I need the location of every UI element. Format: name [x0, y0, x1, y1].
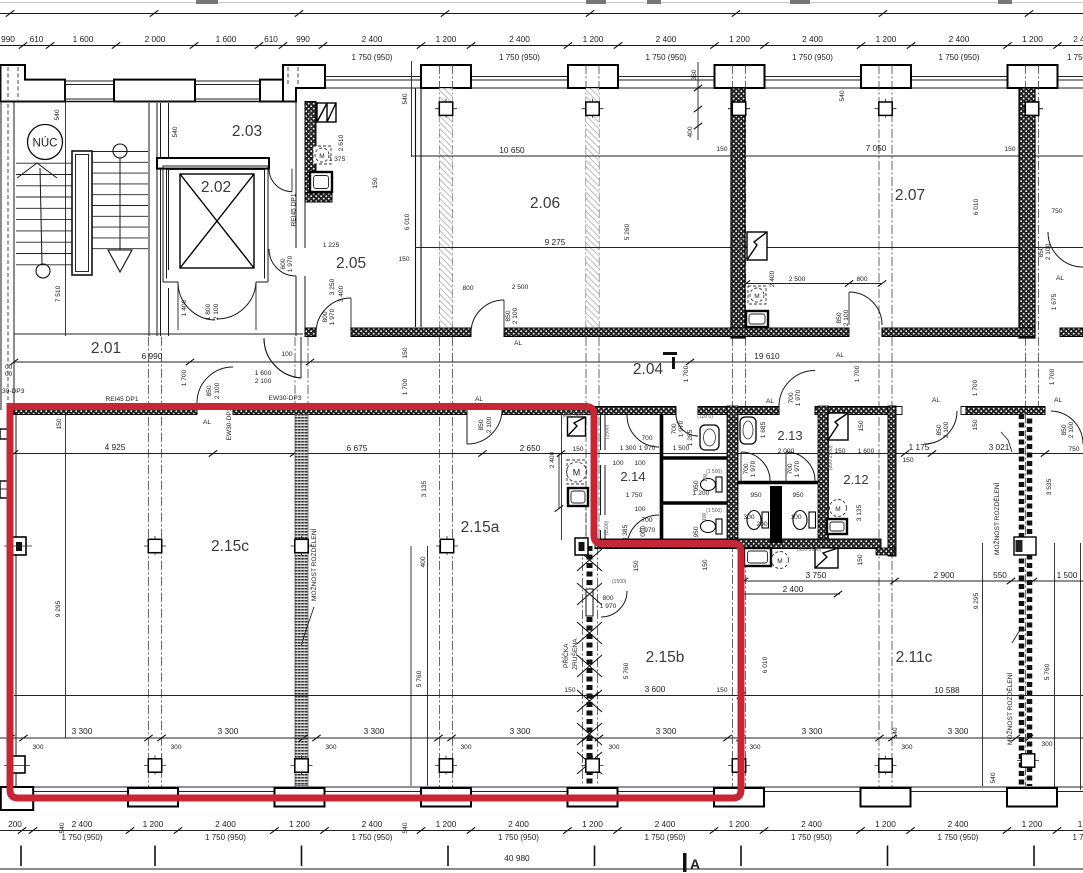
svg-text:540: 540 — [402, 822, 409, 833]
svg-text:2.03: 2.03 — [232, 123, 262, 140]
svg-text:2 500: 2 500 — [512, 284, 529, 291]
svg-text:700: 700 — [641, 435, 652, 442]
svg-text:PŘÍČKA: PŘÍČKA — [561, 643, 570, 668]
svg-text:5 760: 5 760 — [1044, 663, 1051, 680]
svg-text:1 200: 1 200 — [729, 34, 750, 44]
svg-text:REI45 DP1: REI45 DP1 — [291, 193, 298, 226]
svg-text:1 685: 1 685 — [760, 421, 767, 438]
svg-text:1 750 (950): 1 750 (950) — [938, 833, 979, 842]
svg-text:2 900: 2 900 — [934, 570, 955, 580]
svg-text:1 750 (950): 1 750 (950) — [352, 53, 393, 62]
svg-text:800: 800 — [602, 595, 613, 602]
svg-text:1 400: 1 400 — [181, 299, 188, 316]
svg-text:1 750 (950): 1 750 (950) — [645, 833, 686, 842]
svg-text:350: 350 — [691, 69, 698, 80]
svg-text:150: 150 — [564, 687, 575, 694]
svg-text:2 610: 2 610 — [338, 134, 345, 151]
svg-text:2 400: 2 400 — [509, 34, 530, 44]
svg-text:1 750 (950): 1 750 (950) — [62, 833, 103, 842]
svg-text:2 100: 2 100 — [213, 303, 220, 320]
svg-text:2 400: 2 400 — [656, 34, 677, 44]
svg-text:(120 0): (120 0) — [697, 414, 713, 420]
svg-text:2 100: 2 100 — [214, 382, 221, 399]
svg-text:MOŽNOST ROZDĚLENÍ: MOŽNOST ROZDĚLENÍ — [1005, 672, 1014, 745]
svg-text:2 650: 2 650 — [520, 443, 541, 453]
svg-text:2.13: 2.13 — [777, 428, 802, 443]
svg-text:9 275: 9 275 — [545, 237, 566, 247]
svg-text:00: 00 — [5, 371, 13, 378]
svg-text:1 7: 1 7 — [1072, 833, 1083, 842]
svg-text:1 700: 1 700 — [402, 378, 409, 395]
svg-text:2 500: 2 500 — [789, 276, 806, 283]
svg-text:AL: AL — [932, 397, 940, 404]
svg-text:1 500: 1 500 — [1057, 570, 1078, 580]
svg-text:1 200: 1 200 — [582, 819, 603, 829]
svg-text:1 750 (950): 1 750 (950) — [499, 53, 540, 62]
svg-text:1 200: 1 200 — [1022, 34, 1043, 44]
svg-text:990: 990 — [296, 34, 310, 44]
svg-text:150: 150 — [1004, 146, 1015, 153]
svg-text:1 200: 1 200 — [436, 34, 457, 44]
svg-text:750: 750 — [1051, 208, 1062, 215]
svg-text:1 750 (950): 1 750 (950) — [646, 53, 687, 62]
svg-text:1 750 (950): 1 750 (950) — [498, 833, 539, 842]
svg-text:3 300: 3 300 — [364, 726, 385, 736]
svg-text:1 750 (950): 1 750 (950) — [791, 833, 832, 842]
svg-text:150: 150 — [702, 559, 709, 570]
svg-text:M: M — [573, 468, 581, 478]
svg-text:2.02: 2.02 — [201, 179, 231, 196]
svg-text:2.04: 2.04 — [633, 361, 664, 378]
svg-text:1 200: 1 200 — [436, 819, 457, 829]
svg-text:(900-150): (900-150) — [561, 414, 583, 420]
svg-text:540: 540 — [54, 109, 61, 120]
svg-text:1 600: 1 600 — [73, 34, 94, 44]
svg-text:(900-1500): (900-1500) — [828, 445, 834, 470]
svg-text:2 400: 2 400 — [769, 270, 776, 287]
svg-text:700: 700 — [743, 463, 750, 474]
svg-text:30-DP3: 30-DP3 — [2, 388, 25, 395]
svg-text:2 400: 2 400 — [948, 819, 969, 829]
svg-text:AL: AL — [475, 396, 483, 403]
svg-text:3 300: 3 300 — [948, 726, 969, 736]
svg-text:400: 400 — [420, 556, 427, 567]
svg-text:150: 150 — [402, 347, 409, 358]
svg-text:MOŽNOST ROZDĚLENÍ: MOŽNOST ROZDĚLENÍ — [309, 528, 318, 601]
svg-text:M: M — [835, 506, 840, 513]
svg-text:1 750 (950): 1 750 (950) — [939, 53, 980, 62]
svg-text:850: 850 — [206, 385, 213, 396]
svg-text:1 200: 1 200 — [693, 490, 710, 497]
svg-text:3 535: 3 535 — [1046, 478, 1053, 495]
svg-text:610: 610 — [30, 34, 44, 44]
svg-text:150: 150 — [572, 446, 583, 453]
svg-text:9 295: 9 295 — [55, 600, 62, 617]
svg-text:(1 500): (1 500) — [706, 508, 722, 514]
svg-text:2.07: 2.07 — [895, 187, 925, 204]
svg-text:2 400: 2 400 — [801, 819, 822, 829]
svg-text:750: 750 — [1068, 446, 1079, 453]
svg-text:1 750: 1 750 — [1067, 53, 1083, 62]
svg-text:800: 800 — [322, 311, 329, 322]
svg-text:2.12: 2.12 — [843, 472, 868, 487]
svg-text:(900-1500): (900-1500) — [739, 237, 745, 262]
svg-text:3 250: 3 250 — [329, 278, 336, 295]
svg-text:1 200: 1 200 — [876, 34, 897, 44]
svg-text:700: 700 — [671, 423, 678, 434]
svg-text:2.14: 2.14 — [620, 469, 645, 484]
svg-text:150: 150 — [372, 177, 379, 188]
svg-text:2 000: 2 000 — [145, 34, 166, 44]
svg-text:M: M — [777, 558, 782, 565]
svg-text:850: 850 — [936, 424, 943, 435]
svg-text:A: A — [690, 856, 700, 872]
svg-text:100: 100 — [634, 506, 645, 513]
svg-text:540: 540 — [839, 90, 846, 101]
svg-text:100: 100 — [281, 351, 292, 358]
svg-text:10 588: 10 588 — [934, 685, 960, 695]
svg-text:AL: AL — [1054, 397, 1062, 404]
svg-text:2 100: 2 100 — [943, 421, 950, 438]
svg-text:100: 100 — [612, 460, 623, 467]
svg-text:150: 150 — [716, 146, 727, 153]
svg-text:300: 300 — [749, 744, 760, 751]
svg-text:2 400: 2 400 — [549, 451, 556, 468]
svg-text:2 400: 2 400 — [215, 819, 236, 829]
svg-text:100: 100 — [790, 514, 801, 521]
svg-text:1 970: 1 970 — [600, 603, 617, 610]
svg-text:850: 850 — [478, 419, 485, 430]
svg-text:7 510: 7 510 — [55, 285, 62, 302]
svg-text:5 760: 5 760 — [623, 662, 630, 679]
svg-text:150: 150 — [633, 560, 640, 571]
svg-text:850: 850 — [836, 312, 843, 323]
svg-text:3 750: 3 750 — [806, 570, 827, 580]
svg-text:1 970: 1 970 — [678, 420, 685, 437]
svg-text:700: 700 — [787, 463, 794, 474]
svg-text:300: 300 — [325, 744, 336, 751]
svg-text:400: 400 — [687, 126, 694, 137]
svg-text:AL: AL — [836, 352, 844, 359]
svg-text:300: 300 — [743, 514, 754, 521]
svg-text:NÚC: NÚC — [33, 137, 58, 150]
svg-text:00: 00 — [5, 364, 13, 371]
svg-text:300: 300 — [901, 744, 912, 751]
svg-text:150: 150 — [902, 457, 913, 464]
svg-text:1 970: 1 970 — [794, 460, 801, 477]
svg-text:(1 500): (1 500) — [706, 469, 722, 475]
svg-text:1 300: 1 300 — [620, 445, 637, 452]
svg-text:850: 850 — [1061, 424, 1068, 435]
svg-text:5 260: 5 260 — [624, 223, 631, 240]
svg-text:2 100: 2 100 — [486, 416, 493, 433]
svg-text:850: 850 — [505, 310, 512, 321]
svg-text:2 400: 2 400 — [949, 34, 970, 44]
svg-text:550: 550 — [993, 570, 1007, 580]
svg-text:1 700: 1 700 — [1049, 368, 1056, 385]
svg-text:850: 850 — [1038, 246, 1045, 257]
svg-text:800: 800 — [462, 285, 473, 292]
svg-text:M: M — [319, 153, 324, 160]
svg-text:2.06: 2.06 — [530, 195, 560, 212]
svg-text:2 000: 2 000 — [640, 525, 647, 542]
svg-text:EW30-DP3: EW30-DP3 — [269, 395, 302, 402]
svg-text:1 675: 1 675 — [1051, 293, 1058, 310]
svg-text:2.01: 2.01 — [91, 340, 121, 357]
svg-text:1 700: 1 700 — [854, 365, 861, 382]
svg-text:200: 200 — [756, 521, 767, 528]
svg-text:(1500): (1500) — [605, 424, 611, 439]
svg-text:200: 200 — [8, 819, 22, 829]
svg-text:2 100: 2 100 — [255, 378, 272, 385]
svg-text:150: 150 — [972, 419, 979, 430]
svg-text:150: 150 — [857, 554, 864, 565]
svg-text:5 760: 5 760 — [416, 670, 423, 687]
svg-text:1 200: 1 200 — [289, 819, 310, 829]
svg-text:2 100: 2 100 — [1045, 243, 1052, 260]
svg-text:1 970: 1 970 — [795, 389, 802, 406]
svg-text:(1500): (1500) — [604, 520, 610, 535]
svg-text:3 300: 3 300 — [802, 726, 823, 736]
svg-text:150: 150 — [398, 256, 409, 263]
svg-text:1 970: 1 970 — [287, 255, 294, 272]
svg-text:1 700: 1 700 — [181, 369, 188, 386]
svg-text:540: 540 — [990, 772, 997, 783]
svg-text:ZRUŠENA: ZRUŠENA — [570, 638, 579, 670]
svg-text:700: 700 — [788, 392, 795, 403]
svg-text:9 295: 9 295 — [973, 592, 980, 609]
svg-text:1 970: 1 970 — [329, 308, 336, 325]
svg-text:1 200: 1 200 — [1022, 819, 1043, 829]
svg-text:100: 100 — [634, 460, 645, 467]
svg-text:950: 950 — [750, 492, 761, 499]
svg-text:2.15b: 2.15b — [646, 649, 685, 666]
svg-text:600: 600 — [280, 258, 287, 269]
svg-text:540: 540 — [59, 822, 66, 833]
svg-text:2 100: 2 100 — [512, 307, 519, 324]
svg-text:1 285: 1 285 — [687, 429, 694, 446]
svg-text:1 800: 1 800 — [205, 303, 212, 320]
svg-text:1 700: 1 700 — [972, 379, 979, 396]
svg-text:2 400: 2 400 — [783, 584, 804, 594]
svg-text:1 750: 1 750 — [626, 492, 643, 499]
svg-text:800: 800 — [856, 276, 867, 283]
svg-text:950: 950 — [693, 526, 700, 537]
svg-text:2 100: 2 100 — [1068, 421, 1075, 438]
svg-text:1 750 (950): 1 750 (950) — [205, 833, 246, 842]
svg-text:300: 300 — [32, 744, 43, 751]
svg-text:2.15c: 2.15c — [211, 538, 249, 555]
svg-text:300: 300 — [1041, 741, 1052, 748]
svg-text:150: 150 — [716, 687, 727, 694]
svg-text:1 700: 1 700 — [683, 365, 690, 382]
svg-text:2.15a: 2.15a — [461, 519, 500, 536]
svg-text:EW30-DP3: EW30-DP3 — [226, 407, 233, 440]
svg-text:3 600: 3 600 — [645, 684, 666, 694]
svg-text:150: 150 — [858, 420, 865, 431]
svg-text:(900-1540): (900-1540) — [797, 547, 822, 553]
svg-text:1 600: 1 600 — [858, 448, 875, 455]
svg-text:2 400: 2 400 — [655, 819, 676, 829]
svg-text:AL: AL — [1056, 275, 1064, 282]
svg-text:3 135: 3 135 — [856, 504, 863, 521]
svg-text:6 010: 6 010 — [973, 198, 980, 215]
svg-text:1 600: 1 600 — [216, 34, 237, 44]
svg-text:40 980: 40 980 — [504, 853, 530, 863]
svg-text:1 200: 1 200 — [875, 819, 896, 829]
svg-text:3 300: 3 300 — [510, 726, 531, 736]
svg-text:950: 950 — [792, 492, 803, 499]
svg-text:3 021: 3 021 — [989, 442, 1010, 452]
svg-text:AL: AL — [514, 340, 522, 347]
svg-text:300: 300 — [460, 744, 471, 751]
svg-text:2 100: 2 100 — [843, 309, 850, 326]
svg-text:2 400: 2 400 — [362, 819, 383, 829]
svg-text:1 200: 1 200 — [583, 34, 604, 44]
svg-text:2 400: 2 400 — [362, 34, 383, 44]
svg-text:540: 540 — [892, 727, 899, 738]
svg-text:1: 1 — [1078, 819, 1083, 829]
svg-text:3 300: 3 300 — [72, 726, 93, 736]
svg-text:2 4: 2 4 — [1073, 34, 1083, 44]
svg-text:540: 540 — [172, 126, 179, 137]
svg-text:610: 610 — [264, 34, 278, 44]
svg-text:300: 300 — [608, 744, 619, 751]
svg-text:1 750 (950): 1 750 (950) — [792, 53, 833, 62]
svg-text:2 400: 2 400 — [802, 34, 823, 44]
svg-text:1 970: 1 970 — [639, 445, 656, 452]
svg-text:1 375: 1 375 — [329, 156, 346, 163]
svg-text:2.11c: 2.11c — [896, 649, 933, 666]
svg-text:M: M — [754, 293, 759, 300]
svg-text:1 600: 1 600 — [255, 370, 272, 377]
svg-text:2 400: 2 400 — [72, 819, 93, 829]
svg-text:6 675: 6 675 — [347, 443, 368, 453]
svg-text:7 050: 7 050 — [866, 143, 887, 153]
svg-text:6 990: 6 990 — [142, 351, 163, 361]
svg-text:1 970: 1 970 — [750, 460, 757, 477]
svg-text:1 200: 1 200 — [143, 819, 164, 829]
svg-text:300: 300 — [170, 744, 181, 751]
svg-text:1 750 (950): 1 750 (950) — [352, 833, 393, 842]
svg-text:540: 540 — [402, 93, 409, 104]
svg-text:3 300: 3 300 — [218, 726, 239, 736]
svg-text:(900-1500): (900-1500) — [309, 110, 315, 135]
svg-text:150: 150 — [56, 418, 63, 429]
svg-text:2 400: 2 400 — [508, 819, 529, 829]
svg-text:6 010: 6 010 — [762, 656, 769, 673]
svg-text:700: 700 — [641, 517, 652, 524]
svg-text:19 610: 19 610 — [754, 351, 780, 361]
svg-text:MOŽNOST ROZDĚLENÍ: MOŽNOST ROZDĚLENÍ — [992, 482, 1001, 555]
svg-text:(1500): (1500) — [612, 579, 627, 585]
svg-text:3 135: 3 135 — [421, 480, 428, 497]
svg-text:AL: AL — [203, 419, 211, 426]
svg-text:10 650: 10 650 — [499, 145, 525, 155]
svg-text:990: 990 — [1, 34, 15, 44]
svg-text:3 300: 3 300 — [656, 726, 677, 736]
svg-text:1 225: 1 225 — [323, 242, 340, 249]
svg-text:REI45 DP1: REI45 DP1 — [106, 396, 139, 403]
svg-text:4 925: 4 925 — [105, 442, 126, 452]
svg-text:3 385: 3 385 — [622, 524, 629, 541]
svg-text:AL: AL — [766, 398, 774, 405]
svg-text:6 010: 6 010 — [404, 213, 411, 230]
svg-text:150: 150 — [834, 448, 845, 455]
svg-text:2.05: 2.05 — [336, 255, 366, 272]
svg-text:1 175: 1 175 — [909, 442, 930, 452]
svg-text:1 200: 1 200 — [729, 819, 750, 829]
